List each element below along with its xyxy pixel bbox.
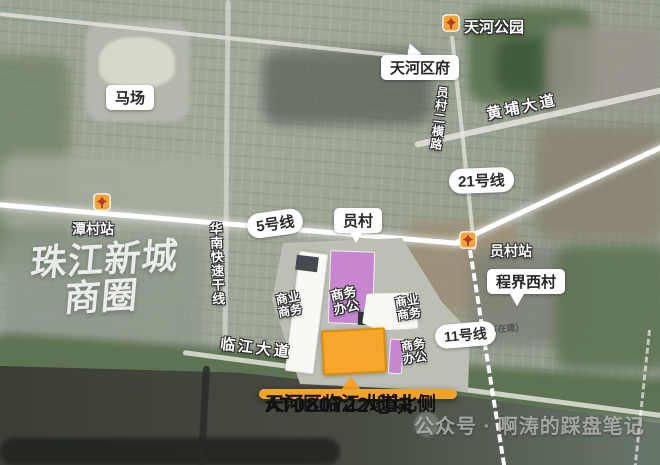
callout-tianhe-district-gov: 天河区府 — [381, 55, 459, 80]
main-callout-plot-at080722: 天河区临江大道北侧 AT080722地块 — [259, 389, 457, 399]
callout-chengjie-west-village: 程界西村 — [487, 269, 565, 294]
plot-label-left-commercial: 商业 商务 — [275, 290, 303, 320]
main-callout-pointer — [341, 376, 361, 390]
station-label-tancun: 潭村站 — [72, 219, 114, 239]
texture-racecourse-track — [98, 36, 176, 88]
road-label-huanan-expressway: 华南快速干线 — [206, 222, 228, 307]
texture-green-right — [555, 245, 660, 370]
plot-target-orange — [321, 327, 387, 375]
metro-label-line21: 21号线 — [449, 167, 515, 194]
callout-pointer-yuancun — [349, 231, 363, 243]
watermark-text: 公众号 · 啊涛的踩盘笔记 — [414, 410, 645, 439]
plot-left-gray-building — [295, 255, 319, 273]
station-label-tianhe-park: 天河公园 — [464, 16, 524, 37]
satellite-map: 商业 商务 商务 办公 商业 商务 商务 办公 黄埔大道 员村二横路 华南快速干… — [0, 0, 660, 465]
texture-village-right — [535, 125, 660, 240]
callout-yuancun-village: 员村 — [334, 208, 382, 233]
metro-icon-yuancun — [459, 231, 477, 249]
plot-label-south-office: 商务 办公 — [400, 337, 427, 366]
district-overlay-zhujiang-new-town: 珠江新城 商圈 — [3, 237, 203, 321]
callout-pointer-chengjie — [510, 294, 524, 306]
main-callout-line2: AT080722地块 — [265, 394, 414, 419]
texture-wharf-dark — [0, 438, 340, 465]
plot-label-right-commercial: 商业 商务 — [394, 293, 422, 322]
plot-label-center-office: 商务 办公 — [329, 285, 360, 318]
station-label-yuancun: 员村站 — [490, 241, 532, 261]
metro-icon-tianhe-park — [442, 14, 460, 32]
metro-icon-tancun — [93, 193, 111, 211]
label-racecourse: 马场 — [106, 85, 154, 110]
